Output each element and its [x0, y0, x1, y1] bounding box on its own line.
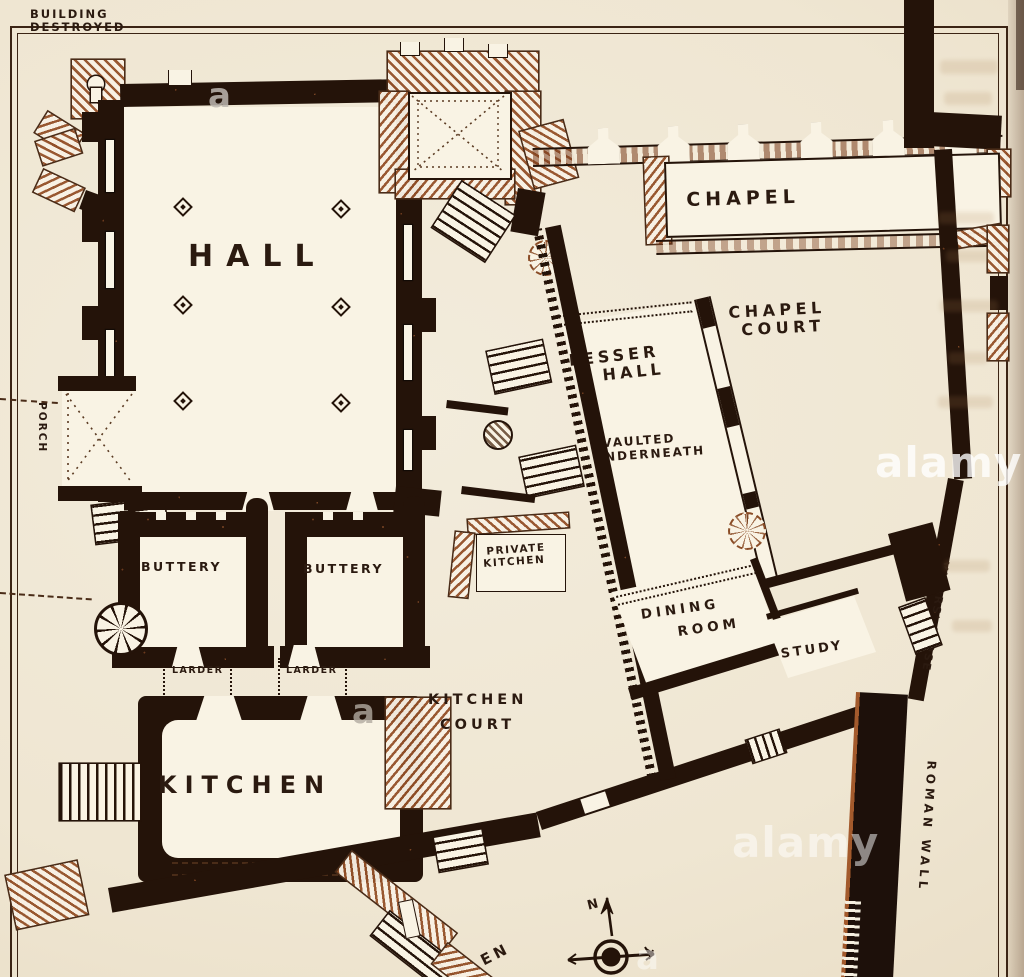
spiral-stair-icon	[728, 512, 766, 550]
page-edge-smudge-top	[1016, 0, 1024, 90]
bleed-through-text	[938, 396, 993, 408]
bleed-through-text	[946, 250, 990, 262]
larder-east-label: LARDER	[286, 666, 337, 677]
buttery-east-label: BUTTERY	[303, 562, 384, 576]
porch-label: PORCH	[36, 402, 48, 453]
bleed-through-text	[940, 60, 998, 74]
crenel-notch	[215, 512, 227, 521]
hall-east-buttress	[420, 298, 436, 332]
private-kitchen-label: PRIVATE KITCHEN	[482, 542, 547, 570]
alamy-watermark-partial: a	[352, 692, 376, 732]
kitchen-court-line1: KITCHEN	[428, 692, 527, 709]
hall-west-window	[106, 140, 114, 192]
buttery-pillar	[246, 498, 268, 520]
porch-north-wall	[58, 376, 136, 391]
alamy-watermark: alamy	[875, 438, 1022, 487]
hall-west-buttress	[82, 208, 99, 242]
hall-east-window	[404, 225, 412, 280]
hall-interior	[124, 107, 396, 493]
page-edge-shade	[1008, 0, 1024, 977]
spiral-stair-icon	[94, 602, 148, 656]
kitchen-west-steps	[60, 764, 140, 820]
chapel-court-label: CHAPEL COURT	[728, 299, 827, 341]
kitchen-label: KITCHEN	[158, 772, 332, 800]
gatehouse-crenel	[488, 44, 508, 58]
street-corner-wall	[928, 112, 1002, 150]
buttery-east-west-wall	[285, 520, 307, 660]
gatehouse-crenel	[444, 38, 464, 52]
street-wall-top	[904, 0, 934, 148]
building-destroyed-line2: DESTROYED	[30, 21, 125, 34]
building-destroyed-label: BUILDING DESTROYED	[30, 8, 125, 34]
buttery-east-east-wall	[403, 512, 425, 662]
bleed-through-text	[938, 212, 994, 224]
wall-buttress	[800, 122, 833, 159]
hall-label: HALL	[188, 240, 327, 275]
hall-north-buttress	[168, 70, 192, 86]
wall-buttress	[587, 128, 620, 165]
buttery-west-interior	[140, 537, 246, 647]
bleed-through-text	[948, 352, 988, 364]
bleed-through-text	[944, 560, 990, 572]
bleed-through-text	[944, 92, 992, 105]
crenel-notch	[155, 512, 167, 521]
wall-buttress	[872, 120, 905, 157]
hall-north-wall	[120, 79, 398, 107]
hall-west-window	[106, 232, 114, 288]
kitchen-court-line2: COURT	[428, 717, 527, 734]
hall-east-window	[404, 325, 412, 380]
crenel-notch	[185, 512, 197, 521]
street-east-hatch	[988, 314, 1008, 360]
chapel-label: CHAPEL	[686, 187, 800, 212]
alamy-watermark-partial: a	[208, 76, 232, 116]
street-east-hatch	[988, 226, 1008, 272]
gatehouse-crenel	[400, 42, 420, 56]
alamy-watermark-partial: a	[636, 938, 660, 977]
buttery-east-interior	[307, 537, 403, 647]
larder-west-label: LARDER	[172, 666, 223, 677]
wall-chunk	[743, 491, 759, 510]
crenel-notch	[322, 512, 334, 521]
buttery-west-east-wall	[246, 520, 268, 660]
wall-buttress	[727, 124, 760, 161]
kitchen-court-label: KITCHEN COURT	[428, 692, 527, 733]
crenel-notch	[352, 512, 364, 521]
bleed-through-text	[940, 300, 998, 312]
alamy-watermark: alamy	[732, 818, 879, 867]
bleed-through-text	[952, 620, 992, 632]
hall-east-window	[404, 430, 412, 470]
floor-plan-scan: BUILDING DESTROYED HALL PORCH	[0, 0, 1024, 977]
porch-vault-lines	[62, 391, 136, 486]
column-drum-icon	[483, 420, 513, 450]
hall-west-buttress	[82, 112, 99, 142]
buttery-west-label: BUTTERY	[141, 560, 222, 574]
hall-east-buttress	[420, 416, 436, 450]
hall-west-buttress	[82, 306, 99, 340]
gatehouse-vault-lines	[408, 92, 508, 176]
